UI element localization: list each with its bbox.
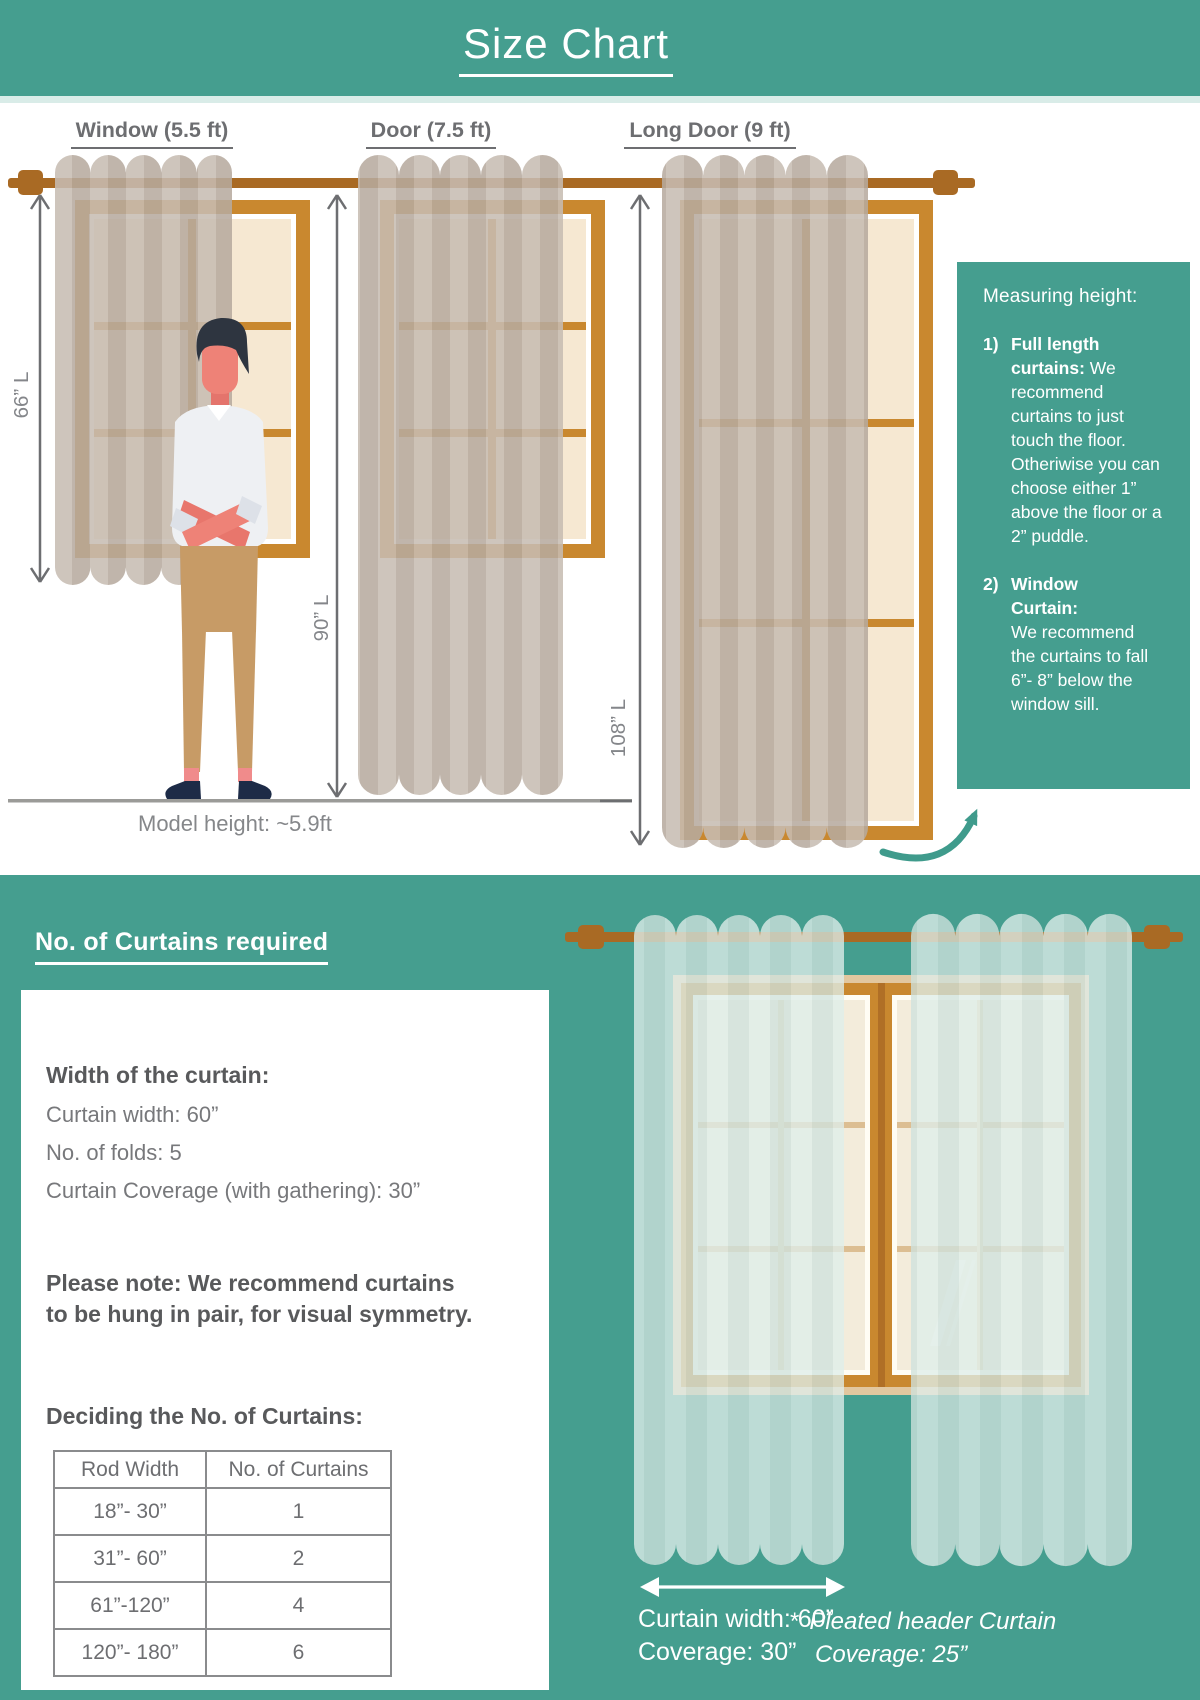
measuring-height-box: Measuring height: 1) Full length curtain… (957, 262, 1190, 789)
width-measure-arrow (640, 1577, 845, 1597)
table-header-row: Rod Width No. of Curtains (54, 1451, 391, 1488)
paired-curtains-illustration (560, 900, 1200, 1700)
item-2-number: 2) (983, 572, 999, 596)
header: Size Chart (0, 0, 1200, 96)
pair-note: Please note: We recommend curtains to be… (46, 1268, 476, 1330)
item-2-bold-line2: Curtain: (1011, 598, 1078, 618)
measuring-box-title: Measuring height: (983, 286, 1162, 308)
rod-finial-left-2 (578, 925, 604, 949)
long-door-length-label: 108” L (607, 693, 631, 763)
door-length-label: 90” L (310, 583, 334, 653)
table-row: 61”-120” 4 (54, 1582, 391, 1629)
curtain-count-table: Rod Width No. of Curtains 18”- 30” 1 31”… (53, 1450, 392, 1677)
pleated-caption-line1: *Pleated header Curtain (790, 1608, 1056, 1636)
asterisk: * (790, 1608, 799, 1635)
coverage-line: Curtain Coverage (with gathering): 30” (46, 1178, 420, 1204)
width-block-title: Width of the curtain: (46, 1062, 269, 1089)
curtain-width-caption-line2: Coverage: 30” (638, 1638, 796, 1667)
arrow-90in (328, 195, 346, 797)
table-row: 31”- 60” 2 (54, 1535, 391, 1582)
rod-finial-right (933, 170, 958, 195)
page-title: Size Chart (459, 20, 673, 77)
section-2-heading: No. of Curtains required (35, 928, 328, 965)
measuring-box-item-1: 1) Full length curtains: We recommend cu… (983, 332, 1162, 548)
rod-finial-left (18, 170, 43, 195)
pleated-caption-line2: Coverage: 25” (815, 1641, 967, 1669)
curtain-width-line: Curtain width: 60” (46, 1102, 218, 1128)
size-chart-infographic: Size Chart Window (5.5 ft) Door (7.5 ft)… (0, 0, 1200, 1700)
door-curtain (358, 155, 563, 795)
col-rod-width: Rod Width (54, 1451, 206, 1488)
window-length-label: 66” L (10, 360, 34, 430)
item-1-number: 1) (983, 332, 999, 356)
floor-line (8, 799, 632, 803)
long-door-curtain (662, 155, 868, 848)
table-title: Deciding the No. of Curtains: (46, 1403, 363, 1430)
item-2-text: We recommend the curtains to fall 6”- 8”… (1011, 622, 1148, 714)
model-height-caption: Model height: ~5.9ft (138, 811, 332, 837)
sheer-curtain-left (634, 915, 844, 1565)
measuring-box-item-2: 2) Window Curtain: We recommend the curt… (983, 572, 1162, 716)
table-row: 18”- 30” 1 (54, 1488, 391, 1535)
folds-line: No. of folds: 5 (46, 1140, 182, 1166)
table-row: 120”- 180” 6 (54, 1629, 391, 1676)
item-2-bold-line1: Window (1011, 574, 1078, 594)
rod-finial-right-2 (1144, 925, 1170, 949)
col-no-of-curtains: No. of Curtains (206, 1451, 391, 1488)
sheer-curtain-right (911, 914, 1132, 1566)
item-1-text: We recommend curtains to just touch the … (1011, 358, 1162, 546)
